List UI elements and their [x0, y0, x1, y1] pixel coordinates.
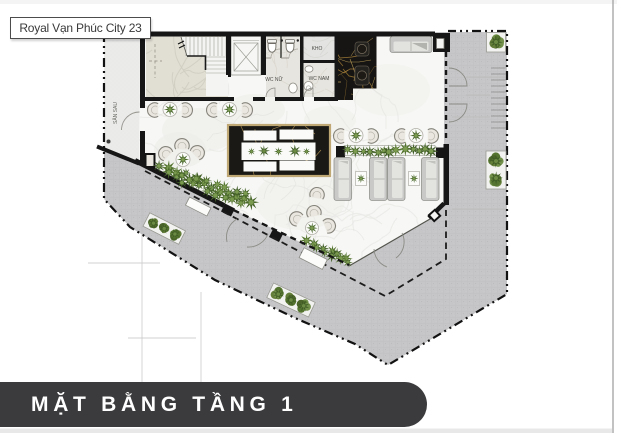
svg-text:KHO: KHO [312, 46, 323, 52]
svg-text:WC NAM: WC NAM [309, 76, 330, 82]
svg-text:WC NỮ: WC NỮ [265, 76, 283, 83]
svg-text:SÂN SAU: SÂN SAU [112, 102, 119, 124]
